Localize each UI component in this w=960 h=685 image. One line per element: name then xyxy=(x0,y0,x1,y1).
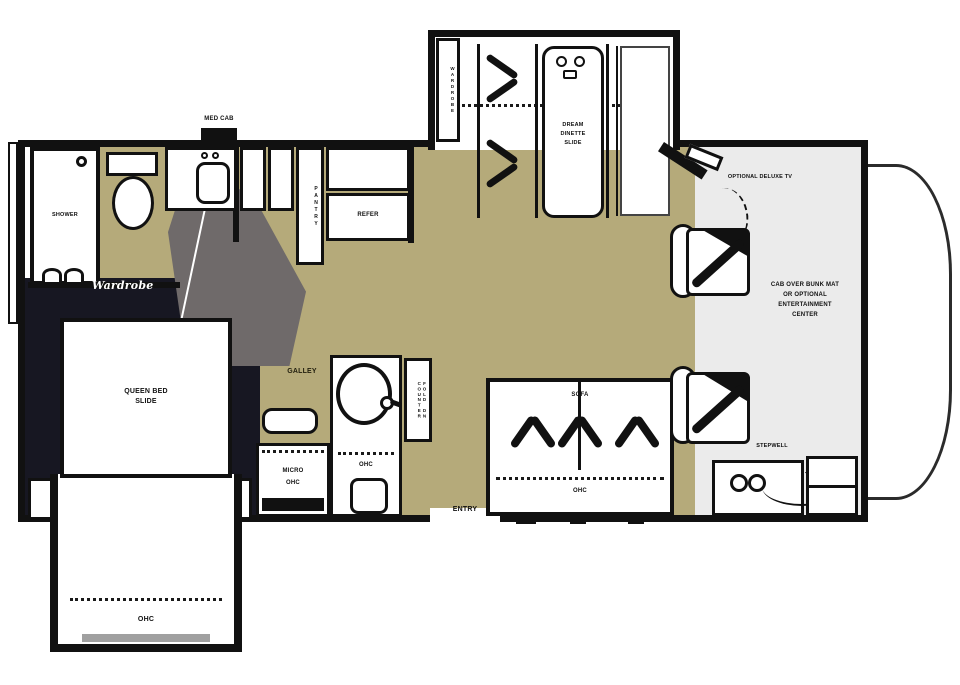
med-cab-label: MED CAB xyxy=(190,116,248,123)
kitchen-wall-stub xyxy=(408,147,414,243)
dinette-bench-edge xyxy=(535,44,538,218)
dinette-seat-icon xyxy=(482,55,532,103)
shower-door-arc xyxy=(64,268,84,282)
fold-down-counter-label: FOLD DN COUNTER xyxy=(409,362,427,438)
dinette-label-1: DREAM xyxy=(546,122,600,128)
refer-label: REFER xyxy=(330,212,406,219)
cabover-bunk-label-4: CENTER xyxy=(752,312,858,319)
sofa-cushion-icon xyxy=(507,410,559,462)
sofa-cushion-icon xyxy=(611,410,663,462)
dinette-label-2: DINETTE xyxy=(546,131,600,137)
lav-faucet-icon xyxy=(201,152,208,159)
dinette-bench-back-line xyxy=(616,46,618,216)
shower-label: SHOWER xyxy=(34,212,96,218)
shower-knob-icon xyxy=(76,156,87,167)
galley-label: GALLEY xyxy=(266,368,338,376)
queen-bed-slideout xyxy=(50,474,242,652)
cabinet xyxy=(268,147,294,211)
stepwell-label: STEPWELL xyxy=(734,443,810,449)
wardrobe-script-label: Wardrobe xyxy=(92,280,172,293)
sofa-cushion-icon xyxy=(554,410,606,462)
micro-ohc-line xyxy=(262,450,324,453)
cab-seat xyxy=(686,372,750,444)
cabover-bunk-label-2: OR OPTIONAL xyxy=(752,292,858,299)
cabover-bunk-label-1: CAB OVER BUNK MAT xyxy=(752,282,858,289)
dinette-wardrobe-label: WARDROBE xyxy=(441,44,455,136)
bed-slide-ohc-label: OHC xyxy=(96,616,196,624)
queen-bed-label-2: SLIDE xyxy=(90,398,202,406)
shower-door-arc xyxy=(42,268,62,282)
cab-nose-outline xyxy=(854,164,952,500)
queen-bed-label-1: QUEEN BED xyxy=(90,388,202,396)
bed-slide-ohc-line xyxy=(70,598,222,601)
bed-slide-trim xyxy=(82,634,210,642)
step-circle-icon xyxy=(730,474,748,492)
dinette-bench-edge xyxy=(606,44,609,218)
galley-ohc-label: OHC xyxy=(336,462,396,469)
micro-label: MICRO xyxy=(260,468,326,475)
toilet-tank-icon xyxy=(106,152,158,176)
toilet-bowl-icon xyxy=(112,176,154,230)
pantry-label: PANTRY xyxy=(302,156,318,258)
sofa-foot xyxy=(628,512,644,524)
micro-base-band xyxy=(262,498,324,511)
dinette-bench-right xyxy=(620,46,670,216)
cup-icon xyxy=(556,56,567,67)
sofa-foot xyxy=(570,512,586,524)
sofa-ohc-label: OHC xyxy=(496,488,664,495)
rear-flange xyxy=(8,142,18,324)
ohc-over-fridge xyxy=(326,147,410,191)
lav-sink-icon xyxy=(196,162,230,204)
micro-ohc-label: OHC xyxy=(260,480,326,487)
lav-faucet-icon xyxy=(212,152,219,159)
condiment-icon xyxy=(563,70,577,79)
rv-floorplan: SHOWER MED CAB Wardrobe OHC QUEEN BED SL… xyxy=(0,0,960,685)
sofa-ohc-line xyxy=(496,477,664,480)
dinette-label-3: SLIDE xyxy=(546,140,600,146)
sofa-foot xyxy=(516,512,536,524)
cup-icon xyxy=(574,56,585,67)
front-cabinet xyxy=(806,456,858,516)
cabover-bunk-label-3: ENTERTAINMENT xyxy=(752,302,858,309)
range-icon xyxy=(350,478,388,514)
optional-tv-label: OPTIONAL DELUXE TV xyxy=(700,174,820,180)
galley-sink-icon xyxy=(336,363,392,425)
bed-foot-cabinet xyxy=(262,408,318,434)
cabinet xyxy=(240,147,266,211)
cab-seat xyxy=(686,228,750,296)
med-cab-icon xyxy=(201,128,237,141)
dinette-bench-edge xyxy=(477,44,480,218)
dinette-seat-icon xyxy=(482,140,532,188)
galley-ohc-line xyxy=(338,452,394,455)
